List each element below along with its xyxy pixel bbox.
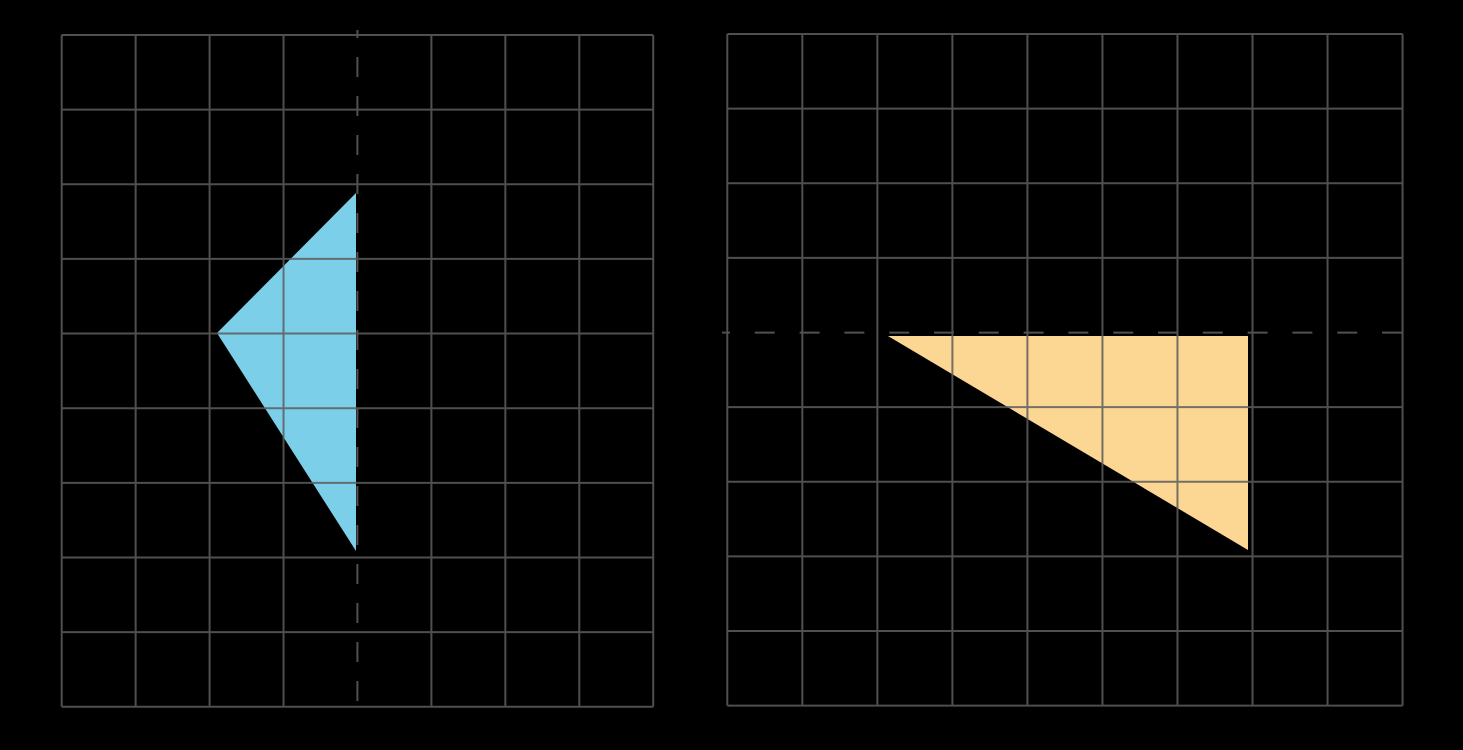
figure-canvas xyxy=(0,0,1463,750)
left-grid-panel xyxy=(62,30,654,711)
right-grid-panel xyxy=(722,34,1412,706)
reflection-grids-figure xyxy=(0,0,1463,750)
blue-triangle xyxy=(217,193,356,551)
orange-triangle xyxy=(888,336,1248,550)
